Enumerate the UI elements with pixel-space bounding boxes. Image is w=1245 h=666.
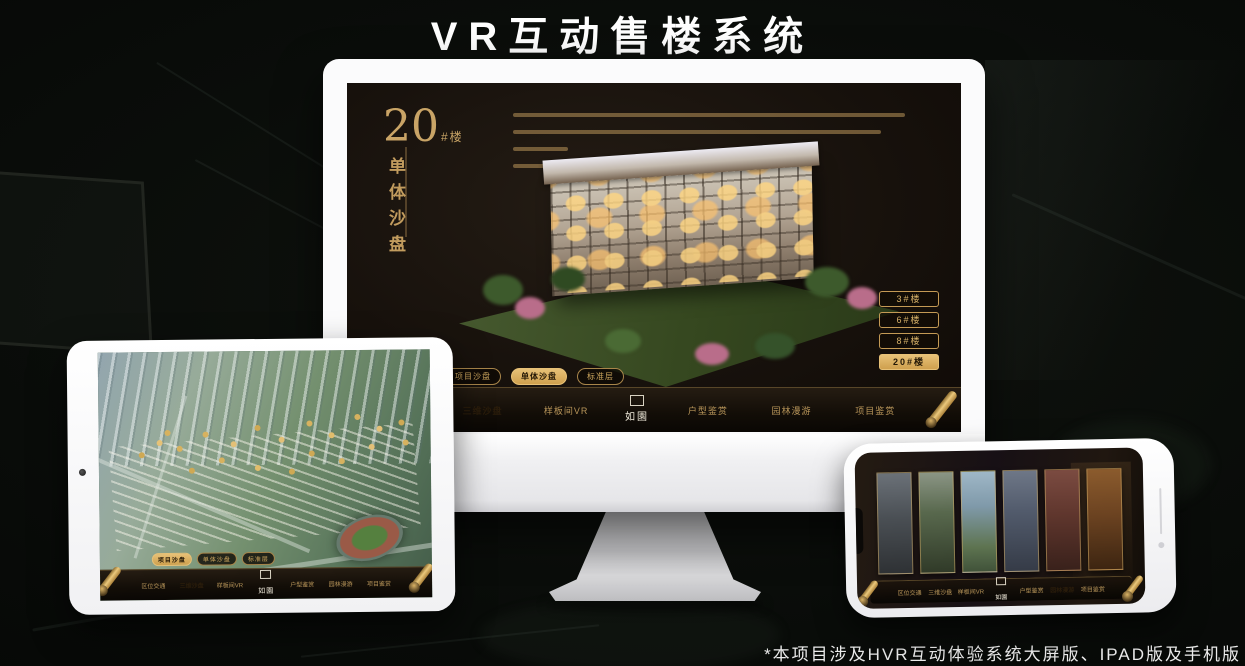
tablet-navbar: 区位交通 三维沙盘 样板间VR 如園 户型鉴赏 园林漫游 项目鉴赏: [100, 566, 432, 600]
phone-side-button: [1159, 488, 1162, 534]
nav-item-floorplan[interactable]: 户型鉴赏: [666, 404, 750, 417]
tree: [605, 329, 641, 353]
building-number: 20: [383, 105, 439, 149]
nav-item-showroom-vr[interactable]: 样板间VR: [955, 586, 986, 596]
background-aerial-band: [985, 60, 1245, 380]
flower-tree: [695, 343, 729, 365]
subtab-single-sandbox[interactable]: 单体沙盘: [511, 368, 567, 385]
scroll-end-cap: [855, 594, 870, 609]
building-3d-model[interactable]: [455, 147, 910, 392]
nav-item-garden-tour[interactable]: 园林漫游: [750, 404, 834, 417]
nav-item-location[interactable]: 区位交通: [894, 587, 925, 597]
nav-item-location[interactable]: 区位交通: [134, 580, 172, 589]
page-title: VR互动售楼系统: [0, 4, 1245, 62]
tablet-camera-icon: [79, 469, 86, 476]
subtab-standard-floor[interactable]: 标准层: [577, 368, 624, 385]
tree: [755, 333, 795, 359]
subtab-project-sandbox[interactable]: 项目沙盘: [445, 368, 501, 385]
tablet-subtabs: 项目沙盘 单体沙盘 标准层: [152, 552, 275, 566]
nav-item-showroom-vr[interactable]: 样板间VR: [211, 580, 249, 589]
nav-item-project-view[interactable]: 项目鉴赏: [833, 404, 917, 417]
gallery-card[interactable]: [1002, 469, 1039, 572]
scroll-end-cap: [923, 415, 938, 430]
headline-divider: [405, 147, 407, 237]
building-number-suffix: #楼: [441, 128, 464, 145]
gallery-card[interactable]: [960, 470, 997, 573]
scroll-menu-icon[interactable]: [927, 389, 959, 426]
building-tab-6[interactable]: 6#楼: [879, 312, 939, 328]
nav-item-garden-tour[interactable]: 园林漫游: [1047, 584, 1078, 594]
brand-logo: 如園: [608, 395, 666, 425]
building-number-markers[interactable]: [157, 440, 163, 446]
nav-item-3d-sandbox[interactable]: 三维沙盘: [172, 580, 210, 589]
nav-item-floorplan[interactable]: 户型鉴赏: [283, 579, 321, 588]
phone-screen: 区位交通 三维沙盘 样板间VR 如園 户型鉴赏 园林漫游 项目鉴赏: [855, 447, 1146, 609]
footnote-text: *本项目涉及HVR互动体验系统大屏版、IPAD版及手机版: [764, 640, 1241, 665]
phone-notch: [856, 508, 864, 554]
nav-item-label: 三维沙盘: [463, 406, 503, 416]
building-selector: 3#楼 6#楼 8#楼 20#楼: [879, 291, 943, 375]
gallery-card[interactable]: [1044, 469, 1081, 572]
nav-item-garden-tour[interactable]: 园林漫游: [321, 578, 359, 587]
poster-canvas: VR互动售楼系统 20#楼 单体沙盘: [0, 0, 1245, 666]
nav-item-label: 三维沙盘: [180, 583, 204, 589]
monitor-subtabs: 项目沙盘 单体沙盘 标准层: [445, 368, 624, 385]
tree: [551, 267, 585, 291]
subtab-single-sandbox[interactable]: 单体沙盘: [197, 552, 237, 565]
nav-item-3d-sandbox[interactable]: 三维沙盘: [925, 587, 956, 597]
gallery-card[interactable]: [1086, 468, 1123, 571]
logo-seal-icon: [996, 577, 1006, 585]
subtab-project-sandbox[interactable]: 项目沙盘: [152, 553, 192, 566]
logo-text: 如園: [625, 412, 649, 423]
nav-item-showroom-vr[interactable]: 样板间VR: [524, 404, 608, 417]
description-text-line: [513, 113, 905, 117]
tablet-device: 项目沙盘 单体沙盘 标准层 区位交通 三维沙盘 样板间VR 如園 户型鉴赏 园林…: [67, 337, 456, 615]
gallery-card[interactable]: [876, 472, 913, 575]
flower-tree: [847, 287, 877, 309]
logo-text: 如園: [995, 594, 1007, 601]
phone-device: 区位交通 三维沙盘 样板间VR 如園 户型鉴赏 园林漫游 项目鉴赏: [843, 438, 1176, 618]
logo-text: 如園: [258, 587, 274, 595]
gallery-card[interactable]: [918, 471, 955, 574]
phone-home-indicator: [1158, 542, 1164, 548]
logo-seal-icon: [630, 395, 644, 406]
phone-navbar: 区位交通 三维沙盘 样板间VR 如園 户型鉴赏 园林漫游 项目鉴赏: [870, 576, 1132, 604]
building-tab-20[interactable]: 20#楼: [879, 354, 939, 370]
building-tab-3[interactable]: 3#楼: [879, 291, 939, 307]
nav-item-label: 园林漫游: [1050, 587, 1074, 593]
background-road-line: [156, 62, 344, 180]
nav-item-floorplan[interactable]: 户型鉴赏: [1016, 585, 1047, 595]
background-picture-frame: [0, 171, 153, 356]
model-lit-windows: [550, 164, 813, 294]
brand-logo: 如園: [986, 576, 1017, 604]
logo-seal-icon: [260, 570, 271, 579]
description-text-line: [513, 130, 881, 134]
monitor-stand: [549, 511, 761, 601]
panorama-gallery: [876, 468, 1123, 575]
flower-tree: [515, 297, 545, 319]
brand-logo: 如園: [249, 570, 283, 598]
subtab-standard-floor[interactable]: 标准层: [242, 552, 275, 565]
tree: [805, 267, 849, 297]
nav-item-project-view[interactable]: 项目鉴赏: [360, 578, 398, 587]
nav-item-project-view[interactable]: 项目鉴赏: [1077, 584, 1108, 594]
building-tab-8[interactable]: 8#楼: [879, 333, 939, 349]
tablet-screen: 项目沙盘 单体沙盘 标准层 区位交通 三维沙盘 样板间VR 如園 户型鉴赏 园林…: [98, 349, 433, 600]
